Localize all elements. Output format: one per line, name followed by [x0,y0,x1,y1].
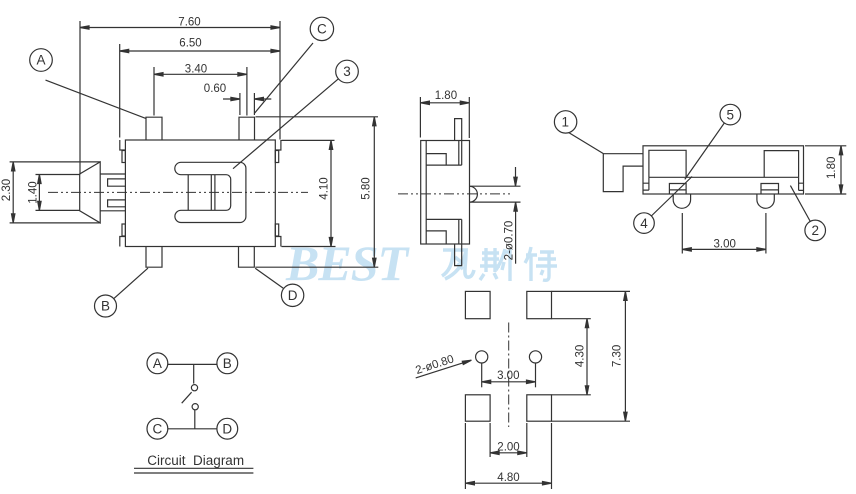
svg-text:3.40: 3.40 [185,64,207,76]
svg-text:2-ø0.80: 2-ø0.80 [414,353,455,377]
svg-text:4: 4 [640,216,648,231]
svg-text:BEST: BEST [285,235,411,291]
svg-text:7.60: 7.60 [178,16,200,28]
svg-text:A: A [36,53,45,68]
svg-text:0.60: 0.60 [204,83,226,95]
svg-text:6.50: 6.50 [179,38,201,50]
svg-text:5: 5 [727,107,735,122]
svg-text:2: 2 [811,223,819,238]
svg-text:7.30: 7.30 [612,345,624,367]
svg-text:4.80: 4.80 [497,472,519,484]
svg-text:3: 3 [343,64,351,79]
svg-text:3.00: 3.00 [497,370,519,382]
svg-text:2-ø0.70: 2-ø0.70 [504,221,516,261]
svg-text:B: B [223,356,232,371]
svg-text:2.00: 2.00 [497,441,519,453]
svg-text:4.10: 4.10 [318,177,330,199]
svg-text:C: C [317,22,327,37]
svg-text:A: A [153,356,162,371]
svg-text:1: 1 [562,115,570,130]
svg-text:D: D [222,421,232,436]
svg-text:D: D [288,288,298,303]
svg-text:C: C [153,421,163,436]
svg-text:1.40: 1.40 [28,181,40,203]
svg-text:Circuit Diagram: Circuit Diagram [147,453,244,468]
svg-text:2.30: 2.30 [1,179,13,201]
svg-text:3.00: 3.00 [714,238,736,250]
svg-text:5.80: 5.80 [361,177,373,199]
svg-text:B: B [101,299,110,314]
svg-text:1.80: 1.80 [826,157,838,179]
svg-text:4.30: 4.30 [575,345,587,367]
svg-text:1.80: 1.80 [435,90,457,102]
